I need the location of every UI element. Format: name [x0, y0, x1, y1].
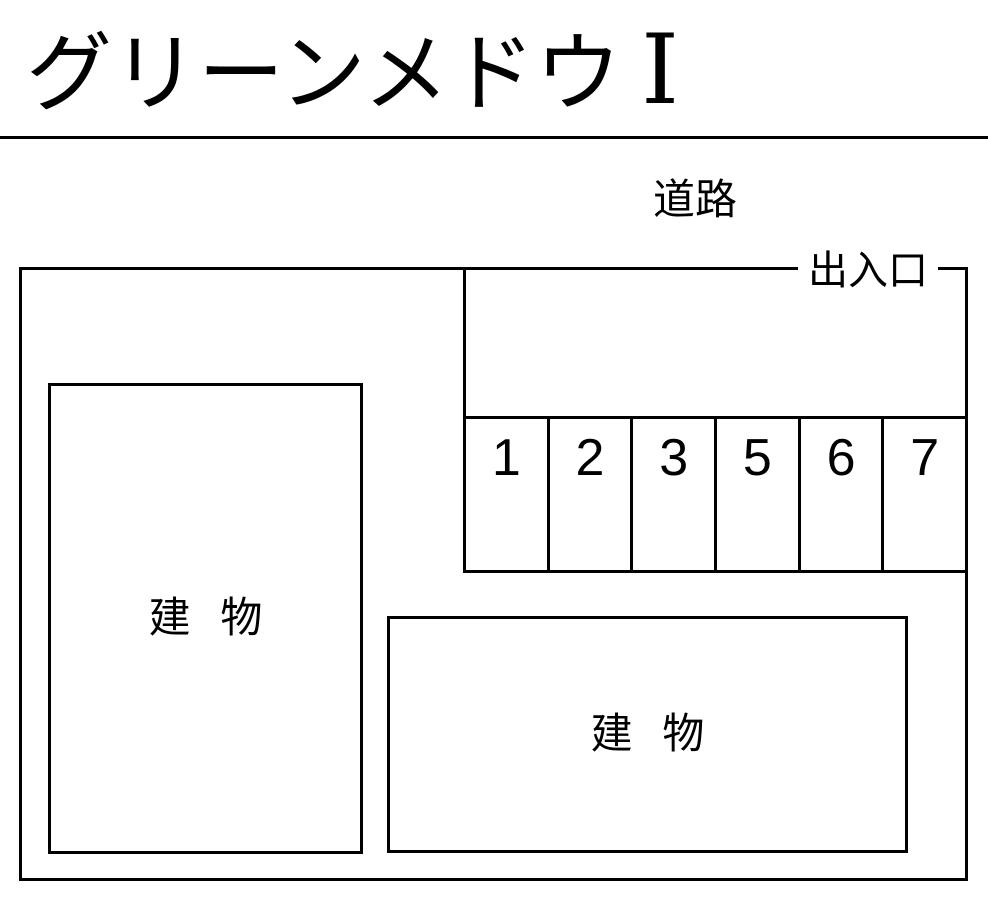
parking-space-7: 7 — [881, 419, 965, 570]
parking-space-1: 1 — [466, 419, 547, 570]
entrance-label: 出入口 — [798, 250, 938, 292]
building-label: 建 物 — [591, 711, 705, 757]
road-label: 道路 — [595, 177, 795, 223]
parking-space-number: 5 — [743, 432, 772, 484]
parking-space-6: 6 — [798, 419, 882, 570]
building-label: 建 物 — [149, 595, 263, 641]
building-right: 建 物 — [387, 616, 908, 853]
parking-space-2: 2 — [547, 419, 631, 570]
parking-space-number: 7 — [910, 432, 939, 484]
title-divider — [0, 136, 988, 139]
parking-space-number: 2 — [576, 432, 605, 484]
page-title: グリーンメドウ Ⅰ — [26, 22, 679, 121]
page-title-numeral: Ⅰ — [641, 22, 679, 118]
parking-space-5: 5 — [714, 419, 798, 570]
parking-space-number: 1 — [492, 432, 521, 484]
parking-row: 1 2 3 5 6 7 — [463, 416, 968, 573]
parking-map: グリーンメドウ Ⅰ 道路 出入口 1 2 3 5 6 7 建 物 建 物 — [0, 0, 988, 907]
building-left: 建 物 — [48, 383, 363, 854]
parking-space-3: 3 — [630, 419, 714, 570]
page-title-text: グリーンメドウ — [26, 28, 621, 121]
parking-space-number: 3 — [659, 432, 688, 484]
parking-space-number: 6 — [827, 432, 856, 484]
